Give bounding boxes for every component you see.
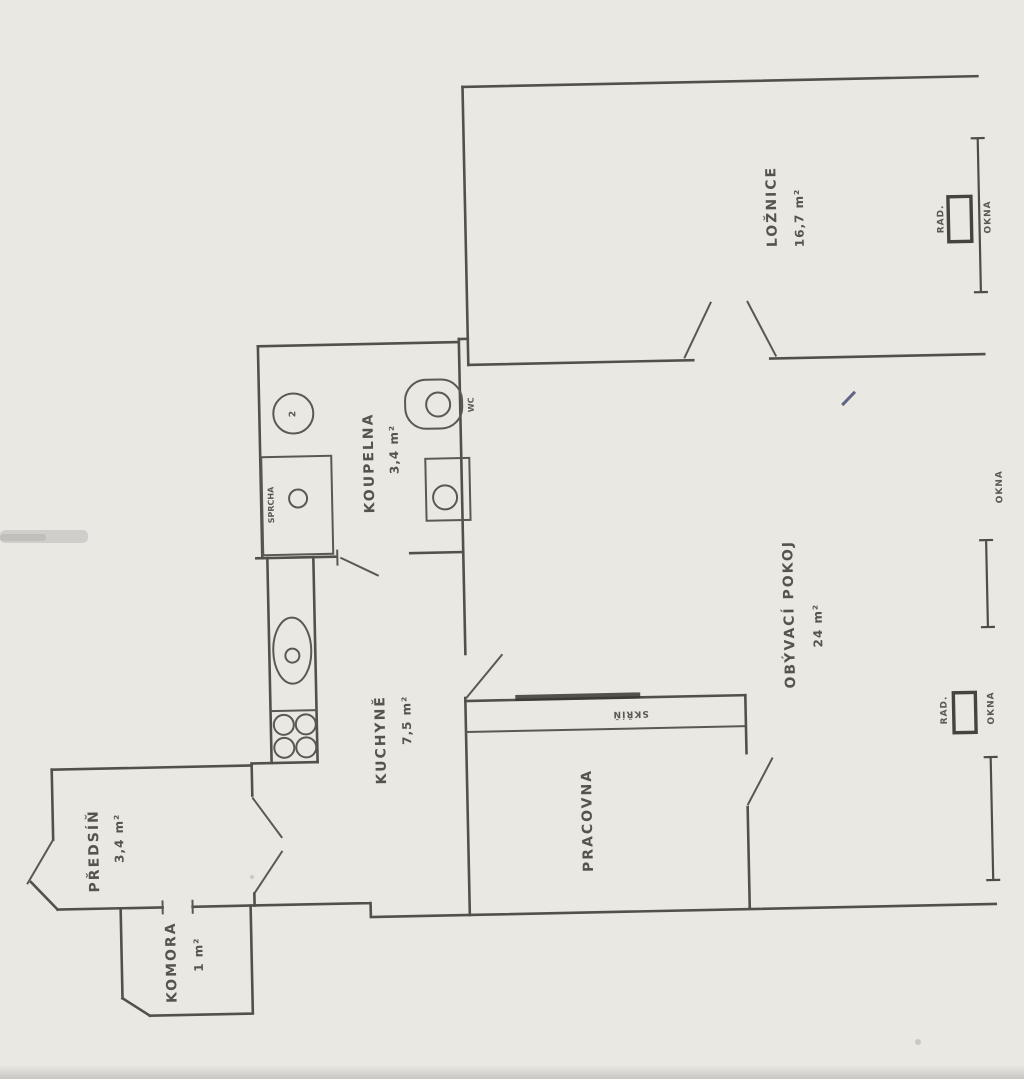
wc-label: WC [467,397,476,412]
wall-bottom-right [470,902,996,915]
room-label-koupelna: KOUPELNA [360,412,378,513]
door-jamb-komora [162,900,192,915]
washbasin-drain-icon [433,485,457,509]
wall-komora [121,906,253,1017]
wall-pracovna-top-thick [515,695,640,698]
door-swing-bath [337,549,379,577]
stove-burner-icon [274,738,294,758]
stove-burner-icon [296,714,316,734]
wall-bedroom-left [463,87,469,365]
room-area-loznice: 16,7 m² [792,188,807,247]
room-area-koupelna: 3,4 m² [387,425,402,474]
door-swing-pracovna [747,758,774,806]
radiator-label-bedroom: RAD. [936,204,947,233]
room-label-kuchyne: KUCHYNĚ [371,695,390,785]
floor-plan-svg: RAD. OKNA LOŽNICE 16,7 m² OKNA RAD. OKNA… [0,0,1024,1079]
appliance-mark: 2 [288,410,298,417]
door-swing-kitchen-living [465,654,503,698]
room-area-kuchyne: 7,5 m² [399,696,414,745]
wall-pracovna-left [465,698,470,915]
window-label-living-lower: OKNA [986,691,997,724]
scan-smudge [0,534,46,541]
room-label-komora: KOMORA [163,921,181,1003]
door-swing-bedroom-left-leaf [683,302,712,359]
room-label-obyvaci: OBÝVACÍ POKOJ [778,540,799,689]
room-area-obyvaci: 24 m² [810,604,825,648]
kitchen-sink-icon [273,617,312,684]
kitchen-sink-drain-icon [285,648,299,662]
stove-burner-icon [274,715,294,735]
wall-bath-right [459,339,466,654]
plan-group: RAD. OKNA LOŽNICE 16,7 m² OKNA RAD. OKNA… [11,76,1016,1018]
wall-kitchen-bottom [252,762,318,763]
toilet-icon [405,379,463,429]
window-label-living-upper: OKNA [995,470,1006,503]
wall-kitchen-counter-left [267,558,271,763]
wall-hall-top [52,766,252,770]
window-label-bedroom: OKNA [983,200,994,233]
radiator-icon-living [953,692,976,732]
toilet-bowl-icon [426,392,450,416]
wall-hall-left [52,770,53,840]
scan-speck [915,1039,921,1045]
wall-hall-chamfer [31,882,58,911]
wall-bath-top [258,339,468,346]
scan-speck [250,875,254,879]
door-swing-entry [26,840,54,885]
radiator-icon-bedroom [948,196,972,241]
ink-mark [842,392,855,405]
wardrobe-label: SKŘÍŇ [612,708,649,721]
room-label-pracovna: PRACOVNA [579,769,597,872]
room-area-komora: 1 m² [191,937,206,972]
wardrobe-strip-line [466,726,746,732]
window-line-living-upper [979,540,995,627]
room-label-predsin: PŘEDSÍŇ [85,809,104,893]
radiator-label-living: RAD. [939,695,950,724]
shower-drain-icon [289,489,307,507]
shower-label: SPRCHA [266,486,276,524]
door-swing-bedroom-right-leaf [747,300,776,357]
wall-bedroom-bottom [468,354,984,365]
room-area-predsin: 3,4 m² [112,814,127,863]
stove-burner-icon [296,737,316,757]
counter-divider [271,710,317,711]
door-swing-hall-double [252,797,283,894]
room-label-loznice: LOŽNICE [762,166,781,248]
window-line-living-lower [984,757,1001,880]
wall-hall-kitchen [252,764,255,906]
scanned-page: RAD. OKNA LOŽNICE 16,7 m² OKNA RAD. OKNA… [0,0,1024,1079]
washbasin-icon [425,458,470,521]
wall-bedroom-top [463,76,978,87]
